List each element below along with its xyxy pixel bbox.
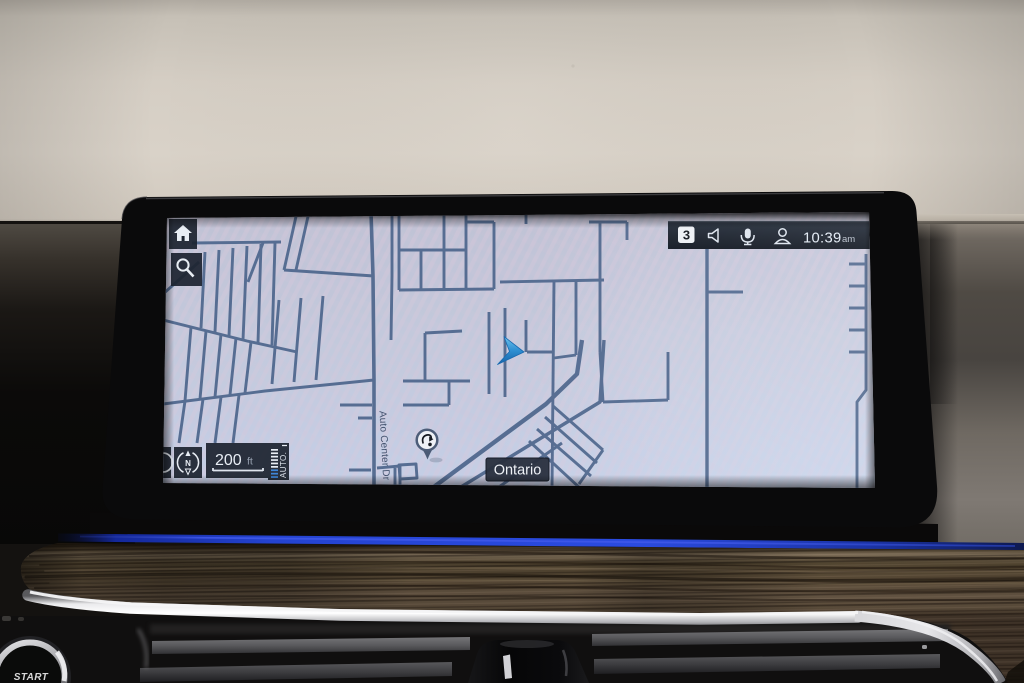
svg-text:200: 200 (215, 452, 242, 469)
svg-text:N: N (185, 459, 191, 468)
svg-text:AUTO.: AUTO. (279, 452, 288, 478)
svg-text:START: START (14, 672, 49, 683)
svg-text:ft: ft (247, 456, 253, 468)
